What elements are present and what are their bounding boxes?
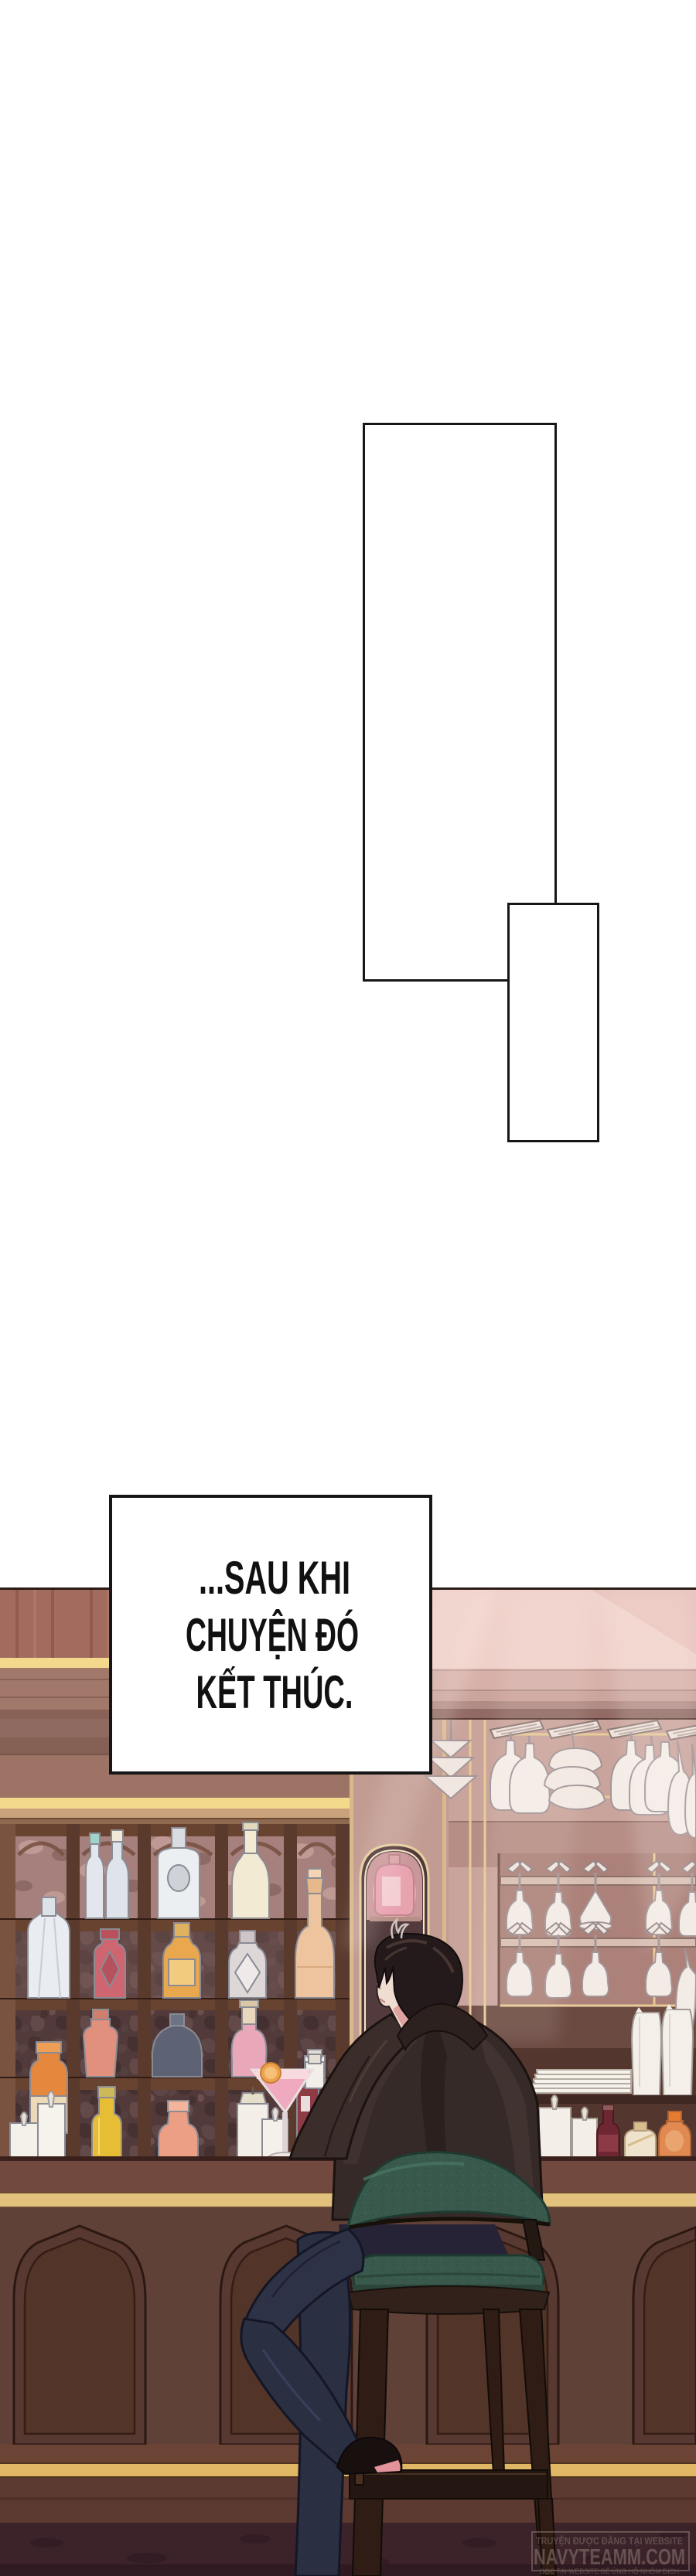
svg-text:ĐỌC TẠI WEBSITE ĐỂ ỦNG HỘ NHÓM: ĐỌC TẠI WEBSITE ĐỂ ỦNG HỘ NHÓM DỊCH [540,2567,679,2575]
svg-text:CHUYỆN ĐÓ: CHUYỆN ĐÓ [186,1609,359,1661]
svg-text:...SAU KHI: ...SAU KHI [199,1552,350,1604]
svg-text:NAVYTEAMM.COM: NAVYTEAMM.COM [534,2545,685,2570]
svg-text:KẾT THÚC.: KẾT THÚC. [196,1666,353,1718]
